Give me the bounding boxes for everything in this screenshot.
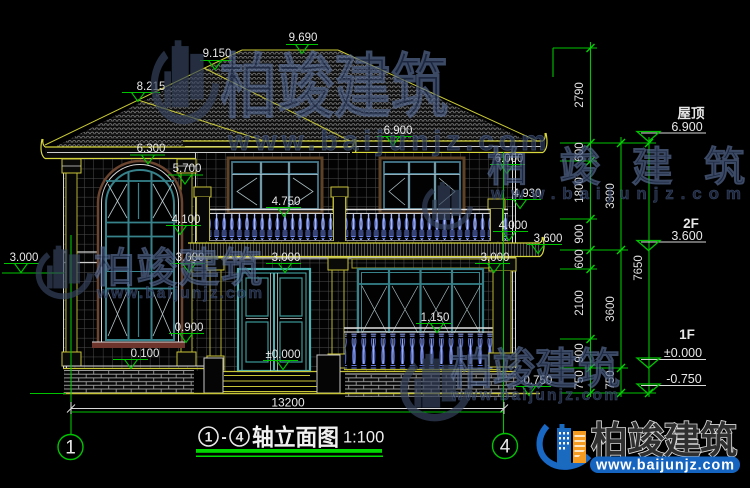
svg-text:3.000: 3.000: [272, 252, 301, 264]
svg-text:3.000: 3.000: [10, 252, 39, 264]
svg-text:3.600: 3.600: [671, 229, 702, 243]
svg-text:9.690: 9.690: [289, 32, 318, 44]
svg-text:900: 900: [574, 224, 586, 243]
svg-text:7650: 7650: [633, 255, 645, 281]
svg-text:柏竣建筑: 柏竣建筑: [591, 419, 737, 461]
svg-text:4: 4: [236, 429, 244, 445]
svg-text:5.700: 5.700: [173, 163, 202, 175]
svg-text:1.150: 1.150: [421, 312, 450, 324]
svg-text:屋顶: 屋顶: [678, 106, 706, 121]
svg-text:0.100: 0.100: [131, 348, 160, 360]
svg-text:4.000: 4.000: [499, 220, 528, 232]
svg-text:3.000: 3.000: [481, 252, 510, 264]
svg-text:0.900: 0.900: [175, 322, 204, 334]
svg-text:柏竣建筑: 柏竣建筑: [220, 48, 448, 126]
svg-text:3.600: 3.600: [534, 233, 563, 245]
svg-text:13200: 13200: [271, 396, 305, 410]
svg-text:1:100: 1:100: [343, 429, 384, 447]
svg-text:4.100: 4.100: [172, 214, 201, 226]
svg-text:4: 4: [500, 437, 511, 458]
svg-text:2790: 2790: [574, 82, 586, 108]
svg-text:4.750: 4.750: [272, 196, 301, 208]
svg-text:6.900: 6.900: [671, 120, 702, 134]
svg-text:-: -: [221, 429, 226, 446]
svg-text:600: 600: [574, 249, 586, 268]
svg-text:±0.000: ±0.000: [265, 349, 300, 361]
svg-text:1: 1: [205, 429, 213, 445]
svg-text:1F: 1F: [679, 327, 695, 342]
svg-text:1: 1: [65, 438, 76, 459]
svg-text:轴立面图: 轴立面图: [252, 424, 339, 450]
svg-text:www.baijunjz.com: www.baijunjz.com: [595, 458, 734, 474]
svg-text:3600: 3600: [605, 296, 617, 322]
svg-text:-0.750: -0.750: [666, 372, 701, 386]
svg-text:6.300: 6.300: [137, 143, 166, 155]
svg-text:±0.000: ±0.000: [664, 346, 702, 360]
svg-text:2100: 2100: [574, 290, 586, 316]
